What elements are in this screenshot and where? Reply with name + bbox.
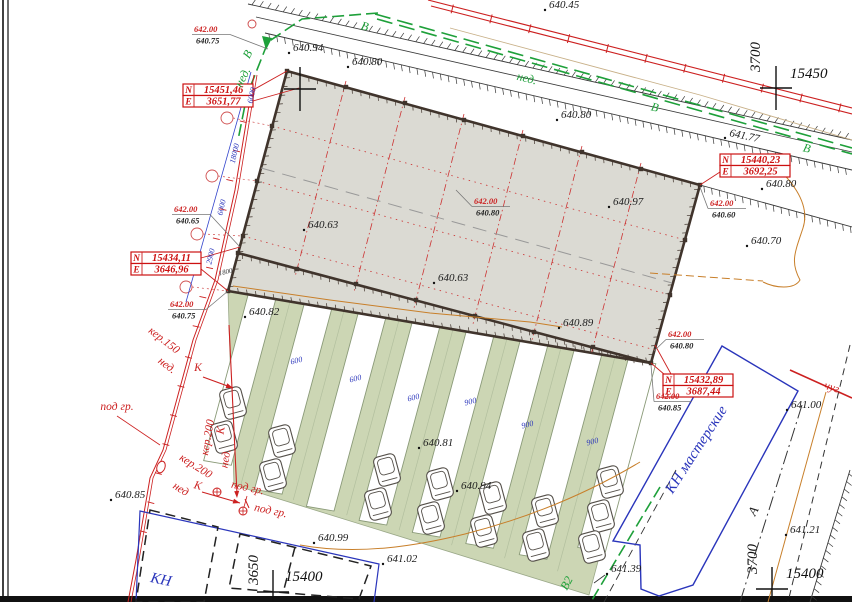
spot-point xyxy=(303,229,305,231)
hatch-tick xyxy=(548,66,552,71)
hatch-tick xyxy=(596,110,597,116)
hatch-tick xyxy=(432,72,433,78)
hatch-tick xyxy=(331,48,332,54)
hatch-tick xyxy=(666,127,667,133)
hatch-tick xyxy=(814,589,819,593)
blue-dim-label: 6000 xyxy=(215,199,227,217)
grid-node xyxy=(639,167,643,171)
hatch-tick xyxy=(773,205,774,211)
hatch-tick xyxy=(409,67,410,73)
bigcoord-label: 3700 xyxy=(748,42,764,74)
hatch-tick xyxy=(284,38,285,44)
hatch-tick xyxy=(847,481,852,485)
existing-level-label: 640.80 xyxy=(476,208,500,218)
existing-level-label: 640.60 xyxy=(712,210,736,220)
hatch-tick xyxy=(542,98,543,104)
spot-label: 640.81 xyxy=(423,437,453,449)
hatch-tick xyxy=(843,224,844,230)
bigcoord-label: 3650 xyxy=(246,555,262,587)
hatch-tick xyxy=(431,40,435,45)
spot-label: 641.02 xyxy=(387,553,418,565)
hatch-tick xyxy=(814,161,815,167)
hatch-tick xyxy=(713,138,714,144)
existing-level-label: 640.80 xyxy=(670,341,694,351)
hatch-tick xyxy=(781,207,782,213)
hatch-tick xyxy=(627,118,628,124)
hatch-tick xyxy=(736,109,740,114)
hatch-tick xyxy=(840,504,845,508)
hatch-tick xyxy=(455,45,459,50)
hatch-tick xyxy=(394,63,395,69)
coordinate-box-se: N 15432,89 E 3687,44 xyxy=(651,345,733,397)
hatch-tick xyxy=(704,186,705,192)
spot-point xyxy=(313,542,315,544)
hatch-tick xyxy=(525,61,529,66)
design-level-label: 642.00 xyxy=(174,204,198,214)
spot-label: 640.45 xyxy=(549,0,580,11)
grid-node xyxy=(683,238,687,242)
hatch-tick xyxy=(712,188,713,194)
hatch-tick xyxy=(392,31,396,36)
site-plan-page: N 15451,46 E 3651,77 N 15440,23 E 3692,2… xyxy=(0,0,852,602)
blue-name-label: КН xyxy=(148,570,174,590)
red-lbl-label: К xyxy=(192,479,205,493)
hatch-tick xyxy=(510,90,511,96)
blue-dim-label: 2900 xyxy=(204,248,216,266)
spot-label: 640.85 xyxy=(115,489,146,501)
coord-n-value: 15440,23 xyxy=(741,155,780,166)
hatch-tick xyxy=(330,17,334,22)
red-lbl-label: нед xyxy=(170,480,190,499)
spot-point xyxy=(418,447,420,449)
coord-e-letter: E xyxy=(721,167,728,177)
spot-point xyxy=(456,490,458,492)
hatch-tick xyxy=(835,222,836,228)
spot-point xyxy=(288,52,290,54)
spot-label: 640.89 xyxy=(563,317,594,329)
coord-n-value: 15434,11 xyxy=(152,253,191,264)
hatch-tick xyxy=(549,99,550,105)
hatch-tick xyxy=(323,47,324,53)
hatch-tick xyxy=(720,105,724,110)
coord-e-value: 3646,96 xyxy=(153,264,189,275)
spot-point xyxy=(347,66,349,68)
hatch-tick xyxy=(822,163,823,169)
spot-point xyxy=(382,563,384,565)
hatch-tick xyxy=(424,38,428,43)
spot-point xyxy=(556,119,558,121)
hatch-tick xyxy=(719,190,720,196)
hatch-tick xyxy=(486,52,490,57)
hatch-tick xyxy=(826,550,831,554)
spot-point xyxy=(433,282,435,284)
shed-outline xyxy=(136,510,218,602)
hatch-tick xyxy=(658,91,662,96)
design-level-label: 642.00 xyxy=(474,196,498,206)
boundary-tick xyxy=(213,238,220,240)
hatch-tick xyxy=(619,116,620,122)
existing-level-label: 640.85 xyxy=(658,403,682,413)
hatch-tick xyxy=(339,50,340,56)
hatch-tick xyxy=(283,7,287,12)
hatch-tick xyxy=(471,81,472,87)
hatch-tick xyxy=(674,128,675,134)
hatch-tick xyxy=(828,543,833,547)
hatch-tick xyxy=(604,112,605,118)
level-leader xyxy=(206,291,228,310)
hatch-tick xyxy=(751,112,755,117)
hatch-tick xyxy=(464,79,465,85)
hatch-tick xyxy=(369,26,373,31)
boundary-tick xyxy=(163,444,170,446)
design-level-label: 642.00 xyxy=(170,299,194,309)
hatch-tick xyxy=(252,0,256,5)
grid-node xyxy=(462,118,466,122)
grid-node xyxy=(344,85,348,89)
hatch-tick xyxy=(557,101,558,107)
hatch-tick xyxy=(791,156,792,162)
spot-point xyxy=(244,316,246,318)
green-lbl-label: В xyxy=(802,140,813,156)
grid-node xyxy=(403,101,407,105)
site-plan-drawing: N 15451,46 E 3651,77 N 15440,23 E 3692,2… xyxy=(0,0,852,602)
axis-leader xyxy=(192,287,228,291)
hatch-tick xyxy=(470,49,474,54)
spot-point xyxy=(544,9,546,11)
bigcoord-label: 3700 xyxy=(745,544,761,576)
spot-label: 640.80 xyxy=(352,56,383,68)
hatch-tick xyxy=(502,56,506,61)
label-leader xyxy=(117,416,160,445)
hatch-tick xyxy=(494,54,498,59)
spot-label: 640.97 xyxy=(613,196,644,208)
spot-point xyxy=(785,534,787,536)
hatch-tick xyxy=(347,52,348,58)
hatch-tick xyxy=(752,147,753,153)
hatch-tick xyxy=(838,167,839,173)
hatch-tick xyxy=(495,87,496,93)
coord-e-letter: E xyxy=(132,265,139,275)
spot-point xyxy=(110,499,112,501)
existing-level-label: 640.75 xyxy=(196,36,220,46)
grid-node xyxy=(580,150,584,154)
grid-node xyxy=(414,298,418,302)
grid-node xyxy=(668,293,672,297)
hatch-tick xyxy=(850,227,851,233)
hatch-tick xyxy=(268,3,272,8)
hatch-tick xyxy=(837,512,842,516)
coord-n-letter: N xyxy=(184,86,193,96)
hatch-tick xyxy=(697,134,698,140)
hatch-tick xyxy=(736,143,737,149)
hatch-tick xyxy=(307,12,311,17)
axis-bubble xyxy=(221,112,233,124)
hatch-tick xyxy=(353,22,357,27)
flow-arrow xyxy=(233,499,240,504)
hatch-tick xyxy=(799,158,800,164)
hatch-tick xyxy=(526,94,527,100)
hatch-tick xyxy=(456,78,457,84)
hatch-tick xyxy=(447,43,451,48)
coord-e-letter: E xyxy=(184,97,191,107)
spot-label: 640.63 xyxy=(308,219,339,231)
hatch-tick xyxy=(416,36,420,41)
hatch-tick xyxy=(635,119,636,125)
hatch-tick xyxy=(833,527,838,531)
grid-node xyxy=(295,267,299,271)
hatch-tick xyxy=(377,28,381,33)
hatch-tick xyxy=(385,29,389,34)
hatch-tick xyxy=(705,136,706,142)
hatch-tick xyxy=(830,165,831,171)
red-boundary xyxy=(431,6,852,114)
boundary-tick xyxy=(199,296,206,298)
hatch-tick xyxy=(346,21,350,26)
spot-label: 640.94 xyxy=(461,480,492,492)
hatch-tick xyxy=(643,121,644,127)
boundary-tick xyxy=(226,179,233,181)
coord-e-value: 3651,77 xyxy=(205,96,241,107)
hatch-tick xyxy=(796,212,797,218)
hatch-tick xyxy=(401,65,402,71)
spot-label: 640.70 xyxy=(751,235,782,247)
road-edge xyxy=(810,470,850,602)
spot-label: 640.80 xyxy=(766,178,797,190)
spot-label: 641.00 xyxy=(791,399,822,411)
hatch-tick xyxy=(712,103,716,108)
hatch-tick xyxy=(681,96,685,101)
red-lbl-label: нед. xyxy=(156,355,179,376)
coord-e-value: 3692,25 xyxy=(742,166,777,177)
spot-label: 640.99 xyxy=(318,532,349,544)
hatch-tick xyxy=(758,201,759,207)
coord-e-value: 3687,44 xyxy=(685,386,720,397)
hatch-tick xyxy=(845,168,846,174)
hatch-tick xyxy=(690,132,691,138)
axis-bubble xyxy=(206,170,218,182)
spot-point xyxy=(558,327,560,329)
hatch-tick xyxy=(338,19,342,24)
design-level-label: 642.00 xyxy=(194,24,218,34)
hatch-tick xyxy=(503,88,504,94)
water-arrow xyxy=(262,36,272,50)
green-lbl-label: нед. xyxy=(516,69,539,87)
hatch-tick xyxy=(789,210,790,216)
bigcoord-label: 15400 xyxy=(285,569,323,585)
hatch-tick xyxy=(440,74,441,80)
coord-n-value: 15432,89 xyxy=(684,375,724,386)
hatch-tick xyxy=(572,72,576,77)
hatch-tick xyxy=(835,520,840,524)
grid-node xyxy=(236,251,240,255)
hatch-tick xyxy=(463,47,467,52)
spot-point xyxy=(724,137,726,139)
hatch-tick xyxy=(400,33,404,38)
coord-n-letter: N xyxy=(664,376,673,386)
utility-symbol xyxy=(248,20,256,28)
red-lbl-label: кер.150 xyxy=(146,325,182,357)
hatch-tick xyxy=(820,218,821,224)
hatch-tick xyxy=(448,76,449,82)
hatch-tick xyxy=(417,68,418,74)
hatch-tick xyxy=(487,85,488,91)
hatch-tick xyxy=(812,216,813,222)
hatch-tick xyxy=(275,5,279,10)
hatch-tick xyxy=(759,114,763,119)
coord-n-letter: N xyxy=(721,156,730,166)
axis-leader xyxy=(203,234,243,236)
bigcoord-label: 15450 xyxy=(790,66,828,82)
hatch-tick xyxy=(534,96,535,102)
spot-label: 641.21 xyxy=(790,524,820,536)
spot-point xyxy=(608,206,610,208)
spot-point xyxy=(761,188,763,190)
hatch-tick xyxy=(682,130,683,136)
hatch-tick xyxy=(299,10,303,15)
hatch-tick xyxy=(425,70,426,76)
level-leader xyxy=(210,215,240,248)
design-level-label: 642.00 xyxy=(668,329,692,339)
spot-label: 640.63 xyxy=(438,272,469,284)
hatch-tick xyxy=(766,203,767,209)
design-level-label: 642.00 xyxy=(710,198,734,208)
existing-level-label: 640.65 xyxy=(176,216,200,226)
hatch-tick xyxy=(651,123,652,129)
hatch-tick xyxy=(728,107,732,112)
hatch-tick xyxy=(479,83,480,89)
grid-node xyxy=(591,345,595,349)
hatch-tick xyxy=(844,489,849,493)
hatch-tick xyxy=(260,1,264,6)
hatch-tick xyxy=(806,159,807,165)
green-lbl-label: В xyxy=(240,47,256,61)
hatch-tick xyxy=(767,116,771,121)
hatch-tick xyxy=(291,8,295,13)
hatch-tick xyxy=(634,86,638,91)
grid-node xyxy=(532,330,536,334)
axis-leader xyxy=(233,118,272,126)
spot-point xyxy=(786,409,788,411)
hatch-tick xyxy=(729,141,730,147)
grid-node xyxy=(354,282,358,286)
red-lbl-label: под гр. xyxy=(100,401,133,413)
hatch-tick xyxy=(744,110,748,115)
hatch-tick xyxy=(827,220,828,226)
axis-bubble xyxy=(191,228,203,240)
hatch-tick xyxy=(744,145,745,151)
hatch-tick xyxy=(518,92,519,98)
hatch-tick xyxy=(735,195,736,201)
boundary-tick xyxy=(240,121,247,123)
hatch-tick xyxy=(439,42,443,47)
existing-level-label: 640.75 xyxy=(172,311,196,321)
spot-label: 640.94 xyxy=(293,42,324,54)
green-lbl-label: В xyxy=(650,99,661,115)
spot-point xyxy=(746,245,748,247)
grid-node xyxy=(521,134,525,138)
bigcoord-label: 15400 xyxy=(786,566,824,582)
hatch-tick xyxy=(478,51,482,56)
hatch-tick xyxy=(830,535,835,539)
hatch-tick xyxy=(612,114,613,120)
spot-label: 640.80 xyxy=(561,109,592,121)
coord-n-letter: N xyxy=(132,254,141,264)
design-level-label: 642.00 xyxy=(656,391,680,401)
hatch-tick xyxy=(658,125,659,131)
spot-point xyxy=(606,573,608,575)
hatch-tick xyxy=(705,101,709,106)
spot-label: 641.39 xyxy=(611,563,642,575)
red-lbl-label: нед. xyxy=(218,448,233,469)
hatch-tick xyxy=(742,197,743,203)
hatch-tick xyxy=(750,199,751,205)
hatch-tick xyxy=(386,61,387,67)
boundary-tick xyxy=(206,267,213,269)
hatch-tick xyxy=(408,35,412,40)
axis-a-label: А xyxy=(744,504,761,519)
blue-name-label: КН мастерские xyxy=(662,403,731,498)
red-lbl-label: под гр. xyxy=(253,502,288,521)
hatch-tick xyxy=(842,497,847,501)
hatch-tick xyxy=(721,139,722,145)
red-lbl-label: К xyxy=(193,362,203,374)
hatch-tick xyxy=(823,558,828,562)
spot-label: 640.82 xyxy=(249,306,280,318)
